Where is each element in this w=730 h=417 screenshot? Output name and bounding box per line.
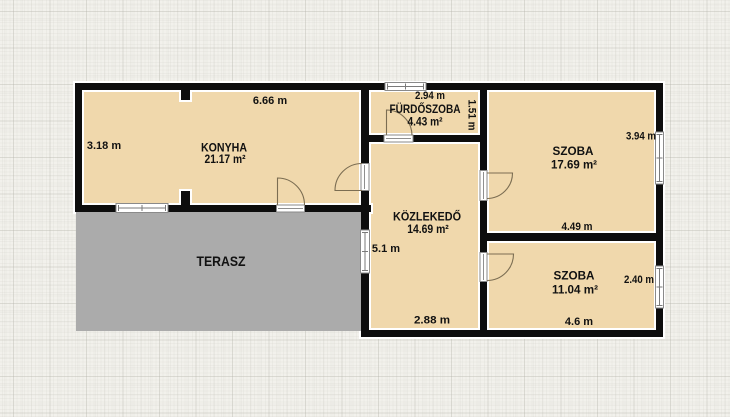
svg-text:4.6 m: 4.6 m (565, 316, 593, 328)
svg-text:2.40 m: 2.40 m (624, 274, 654, 286)
svg-text:11.04 m²: 11.04 m² (552, 283, 598, 297)
svg-text:2.88 m: 2.88 m (414, 315, 450, 327)
svg-text:17.69 m²: 17.69 m² (551, 158, 597, 172)
svg-text:SZOBA: SZOBA (554, 269, 595, 283)
svg-text:21.17 m²: 21.17 m² (205, 152, 246, 166)
svg-text:4.49 m: 4.49 m (562, 221, 593, 233)
svg-text:5.1 m: 5.1 m (372, 243, 400, 255)
svg-text:TERASZ: TERASZ (197, 253, 246, 269)
svg-text:3.18 m: 3.18 m (87, 140, 121, 152)
svg-text:6.66 m: 6.66 m (253, 95, 287, 107)
svg-text:SZOBA: SZOBA (553, 144, 594, 158)
svg-text:4.43 m²: 4.43 m² (408, 115, 443, 129)
svg-text:14.69 m²: 14.69 m² (407, 222, 449, 236)
svg-text:3.94 m: 3.94 m (626, 131, 656, 143)
svg-text:2.94 m: 2.94 m (415, 90, 445, 102)
svg-text:1.51 m: 1.51 m (466, 100, 478, 131)
